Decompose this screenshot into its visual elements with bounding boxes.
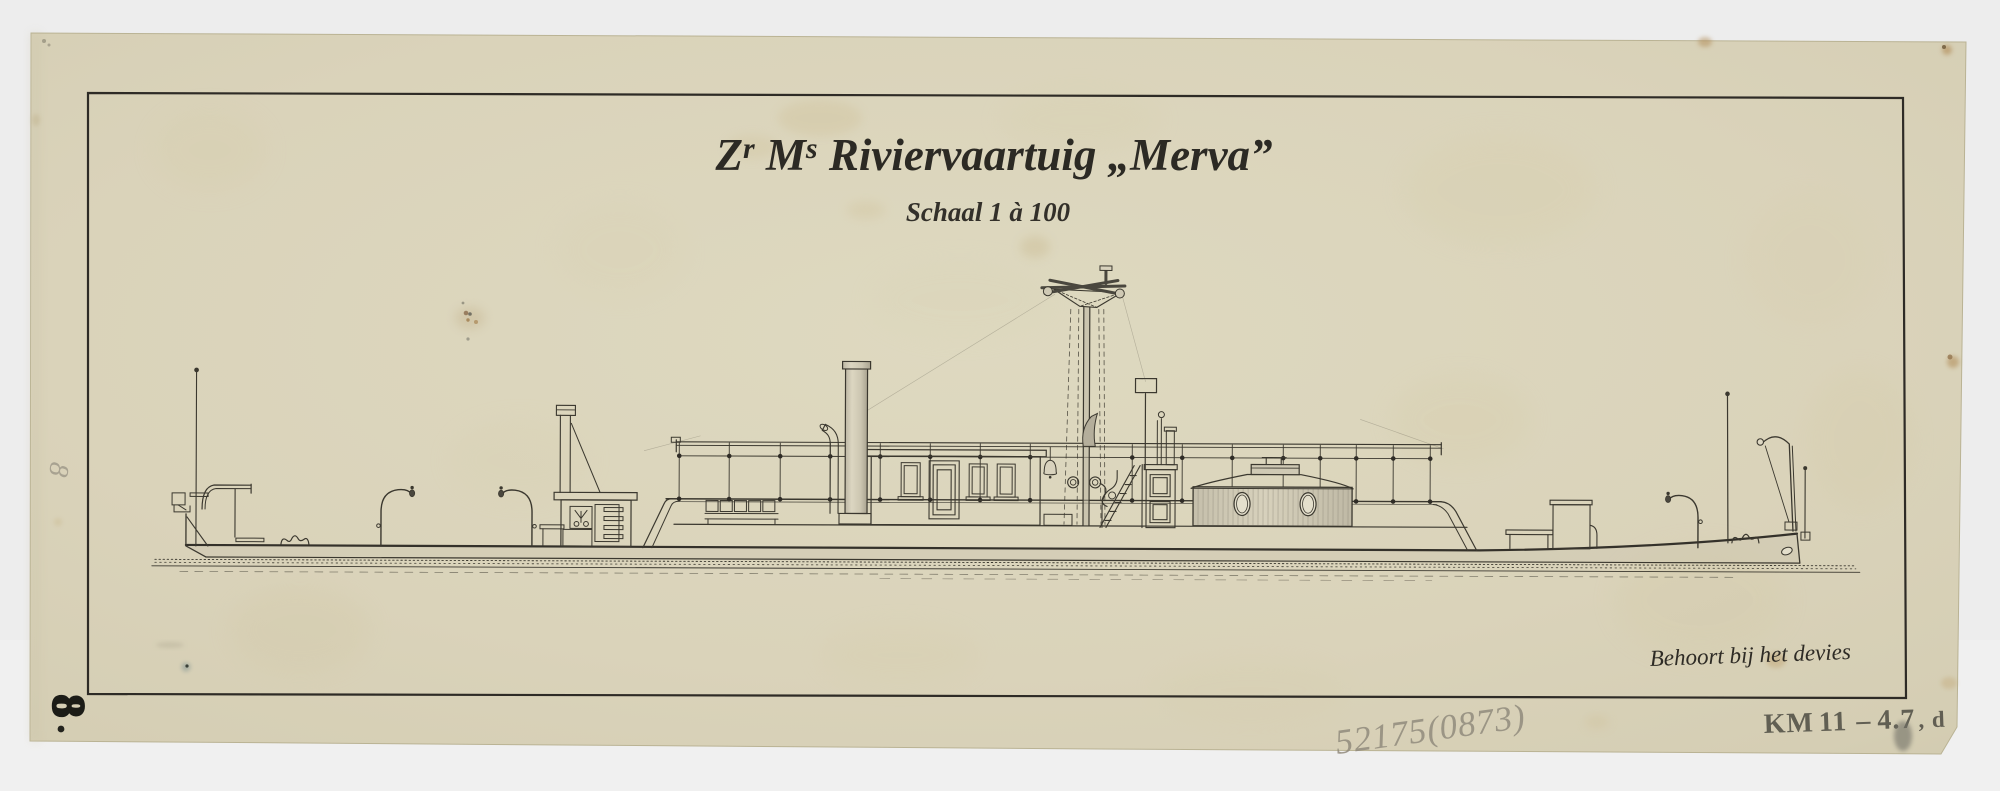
svg-text:Schaal 1 à 100: Schaal 1 à 100 (906, 197, 1071, 227)
svg-text:Zr Ms Riviervaartuig „Merva”: Zr Ms Riviervaartuig „Merva” (714, 130, 1272, 180)
svg-text:8: 8 (43, 695, 94, 718)
